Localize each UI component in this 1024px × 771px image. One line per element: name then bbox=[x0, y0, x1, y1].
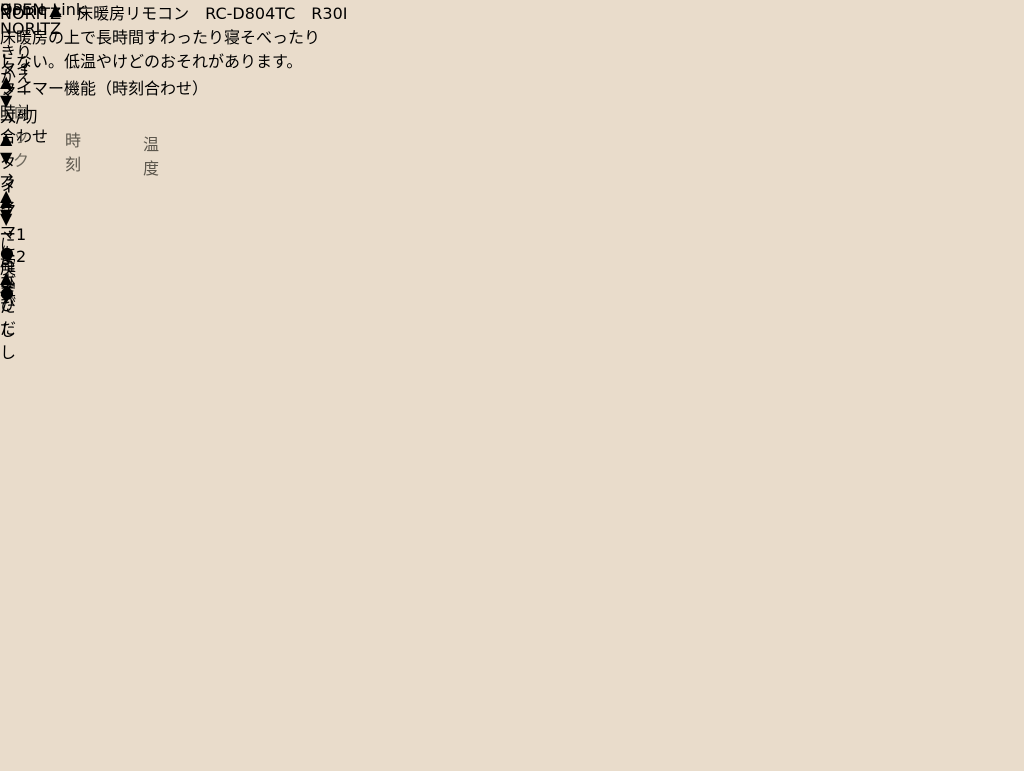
photo-watermark: Home Link bbox=[0, 0, 85, 19]
flap-note bbox=[0, 265, 347, 283]
room-photo: OPEN ▲ NORITZ 9 ロック きりかえ タイマー bbox=[0, 0, 1024, 771]
flap-section: ● bbox=[0, 283, 347, 302]
flap-section: ● bbox=[0, 243, 347, 262]
instruction-flap: NORITZ 床暖房リモコン RC-D804TC R30I 床暖房の上で長時間す… bbox=[0, 0, 347, 302]
instruction-flap-wrapper: NORITZ 床暖房リモコン RC-D804TC R30I 床暖房の上で長時間す… bbox=[0, 0, 347, 308]
flap-warning-box: 床暖房の上で長時間すわったり寝そべったり しない。低温やけどのおそれがあります。 bbox=[0, 24, 347, 72]
flap-button-diagram: ▲ ▼ → ▲ ▼ → ▲ ▼ → bbox=[0, 72, 347, 243]
